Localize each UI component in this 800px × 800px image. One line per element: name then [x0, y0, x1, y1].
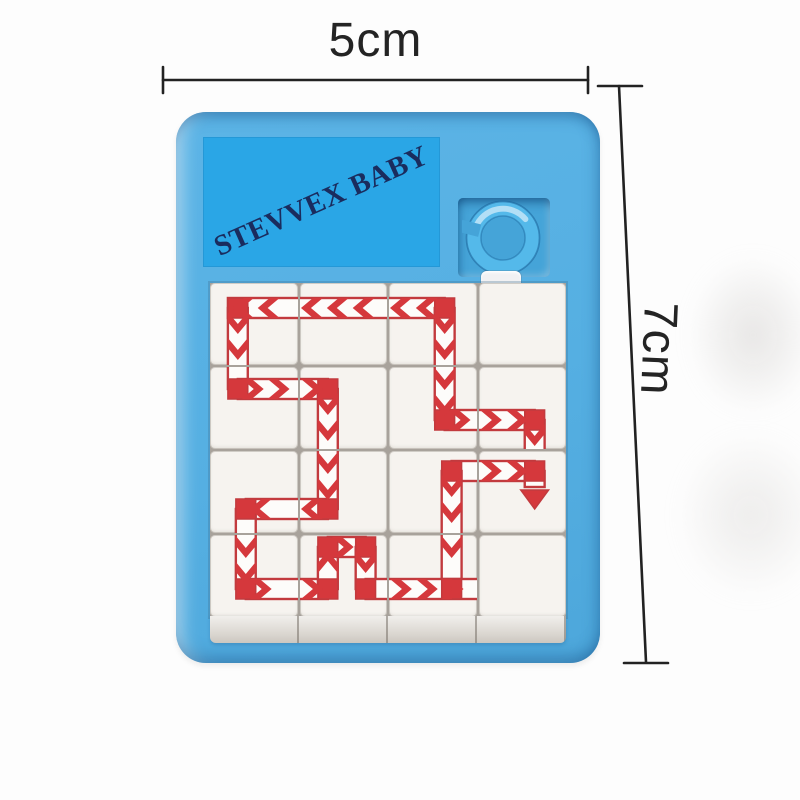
arrow-path-graphic: [300, 367, 388, 449]
puzzle-board: [210, 283, 566, 617]
arrow-path-graphic: [210, 451, 298, 533]
arrow-path-graphic: [389, 451, 477, 533]
puzzle-tile-r3c2: [300, 451, 388, 533]
background-smudge: [676, 430, 800, 600]
arrow-path-graphic: [479, 283, 567, 365]
puzzle-tile-r1c3: [389, 283, 477, 365]
keychain-ring-icon: [462, 197, 544, 279]
arrow-path-graphic: [210, 367, 298, 449]
puzzle-tile-r1c2: [300, 283, 388, 365]
puzzle-tile-r3c3: [389, 451, 477, 533]
puzzle-tile-r2c2: [300, 367, 388, 449]
puzzle-tile-r2c1: [210, 367, 298, 449]
puzzle-tile-r2c3: [389, 367, 477, 449]
arrow-path-graphic: [479, 367, 567, 449]
brand-watermark: STEVVEX BABY: [203, 137, 440, 267]
arrow-path-graphic: [389, 283, 477, 365]
arrow-path-graphic: [300, 535, 388, 617]
width-dimension-label: 5cm: [163, 13, 588, 68]
puzzle-tile-r2c4: [479, 367, 567, 449]
puzzle-tile-r3c4: [479, 451, 567, 533]
puzzle-tile-r3c1: [210, 451, 298, 533]
arrow-path-graphic: [210, 535, 298, 617]
board-bottom-edge: [210, 616, 566, 643]
puzzle-tile-r1c1: [210, 283, 298, 365]
puzzle-tile-r1c4: [479, 283, 567, 365]
arrow-path-graphic: [479, 451, 567, 533]
arrow-path-graphic: [389, 535, 477, 617]
background-smudge: [688, 255, 800, 415]
puzzle-tile-r4c3: [389, 535, 477, 617]
puzzle-tile-r4c2: [300, 535, 388, 617]
arrow-path-graphic: [300, 283, 388, 365]
product-photo-scene: 5cm 7cm STEVVEX BABY: [0, 0, 800, 800]
arrow-path-graphic: [210, 283, 298, 365]
puzzle-tile-r4c4: [479, 535, 567, 617]
arrow-path-graphic: [479, 535, 567, 617]
puzzle-tile-r4c1: [210, 535, 298, 617]
arrow-path-graphic: [300, 451, 388, 533]
arrow-path-graphic: [389, 367, 477, 449]
height-dimension-label: 7cm: [629, 301, 688, 397]
brand-watermark-text: STEVVEX BABY: [207, 138, 437, 265]
